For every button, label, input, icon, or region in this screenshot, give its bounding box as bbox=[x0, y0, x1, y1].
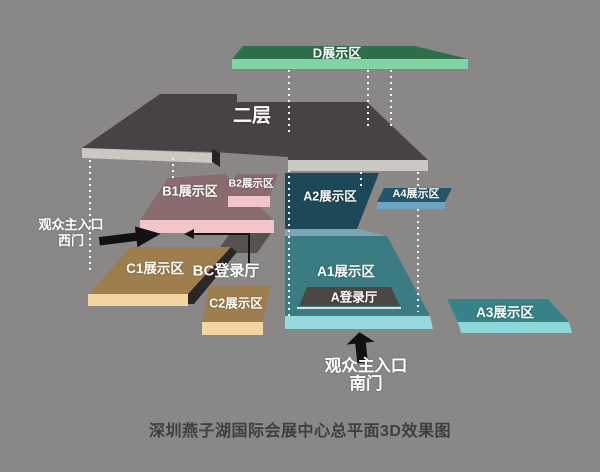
bc-hall-leader-line-horizontal bbox=[192, 233, 250, 235]
west-entrance-line2: 西门 bbox=[28, 233, 114, 249]
site-plan-diagram: D展示区 二层 B1展示区 B2展示区 A2展示区 A4展示区 A1展示区 A登… bbox=[0, 0, 600, 472]
projection-dotted-line bbox=[367, 70, 369, 128]
south-entrance-line1: 观众主入口 bbox=[318, 357, 414, 375]
projection-dotted-line bbox=[288, 70, 290, 132]
b1-zone-label: B1展示区 bbox=[162, 181, 218, 200]
b2-zone-label: B2展示区 bbox=[229, 176, 274, 191]
a3-zone-label: A3展示区 bbox=[476, 301, 534, 321]
west-entrance-line1: 观众主入口 bbox=[28, 217, 114, 233]
projection-dotted-line bbox=[172, 158, 174, 178]
a1-zone-label: A1展示区 bbox=[317, 260, 375, 280]
west-entrance-annotation: 观众主入口 西门 bbox=[28, 217, 114, 249]
a4-zone-label: A4展示区 bbox=[392, 185, 439, 201]
diagram-caption: 深圳燕子湖国际会展中心总平面3D效果图 bbox=[149, 417, 451, 441]
bc-hall-label: BC登录厅 bbox=[193, 260, 260, 281]
c2-zone-label: C2展示区 bbox=[209, 293, 262, 312]
south-entrance-annotation: 观众主入口 南门 bbox=[318, 357, 414, 393]
projection-dotted-line bbox=[417, 209, 419, 312]
projection-dotted-line bbox=[360, 172, 362, 187]
south-entrance-line2: 南门 bbox=[318, 375, 414, 393]
a2-zone-label: A2展示区 bbox=[303, 186, 356, 205]
second-floor-label: 二层 bbox=[233, 101, 271, 128]
projection-dotted-line bbox=[390, 70, 392, 128]
projection-dotted-line bbox=[89, 160, 91, 270]
a-hall-label: A登录厅 bbox=[331, 287, 378, 306]
projection-dotted-line bbox=[417, 172, 419, 186]
projection-dotted-line bbox=[288, 170, 290, 318]
c1-zone-label: C1展示区 bbox=[126, 257, 184, 277]
d-zone-label: D展示区 bbox=[313, 43, 361, 62]
